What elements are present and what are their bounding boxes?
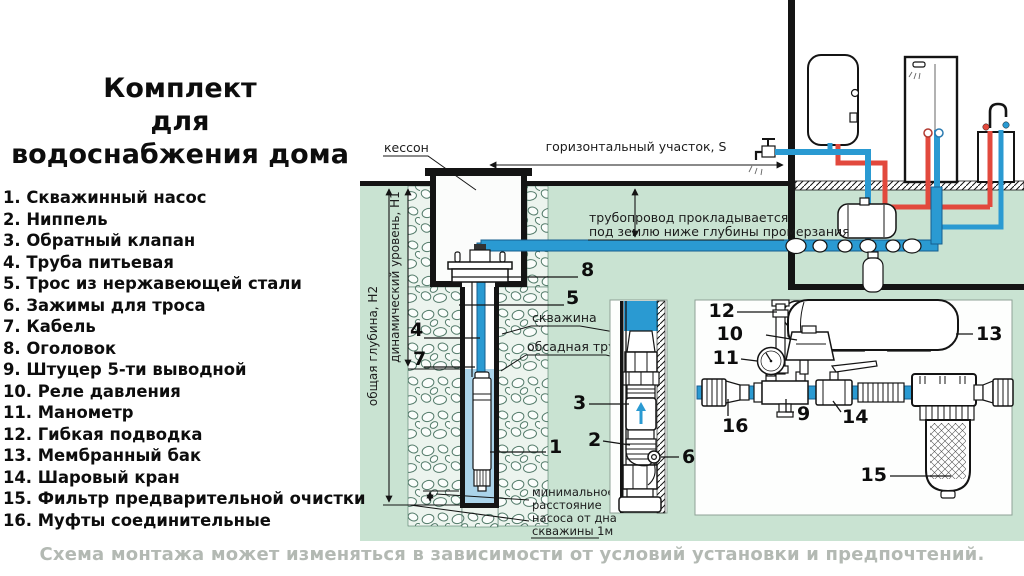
total-depth-label: общая глубина, Н2 <box>366 286 380 406</box>
min-distance-line1: минимальное <box>532 485 615 499</box>
pipeline-note-line2: под землю ниже глубины промерзания <box>589 224 850 239</box>
house-wall <box>788 0 795 191</box>
callout-15: 15 <box>861 464 887 486</box>
parts-list-panel: Комплект для водоснабжения дома 1. Скваж… <box>0 0 360 576</box>
parts-list-item: 11. Манометр <box>3 402 360 424</box>
callout-8: 8 <box>581 259 594 281</box>
parts-list-item: 14. Шаровый кран <box>3 467 360 489</box>
parts-list-item: 5. Трос из нержавеющей стали <box>3 273 360 295</box>
dynamic-level-label: динамический уровень, Н1 <box>388 191 402 363</box>
title-line-2: для <box>0 105 360 138</box>
caisson-label: кессон <box>384 140 429 155</box>
parts-list-item: 1. Скважинный насос <box>3 187 360 209</box>
title-line-1: Комплект <box>0 72 360 105</box>
pump-strainer <box>474 470 490 486</box>
horizontal-section-label: горизонтальный участок, S <box>546 139 727 154</box>
parts-list-item: 10. Реле давления <box>3 381 360 403</box>
parts-list-item: 12. Гибкая подводка <box>3 424 360 446</box>
parts-list-item: 16. Муфты соединительные <box>3 510 360 532</box>
callout-12: 12 <box>709 300 735 322</box>
casing-left <box>460 287 465 507</box>
parts-list-item: 4. Труба питьевая <box>3 252 360 274</box>
pipeline-note-line1: трубопровод прокладывается <box>589 210 788 225</box>
callout-6: 6 <box>682 446 695 468</box>
outdoor-tap <box>749 139 775 175</box>
footer-caption: Схема монтажа может изменяться в зависим… <box>0 544 1024 565</box>
page-title: Комплект для водоснабжения дома <box>0 72 360 171</box>
callout-7: 7 <box>413 348 426 370</box>
callout-3: 3 <box>573 392 586 414</box>
callout-4: 4 <box>410 319 423 341</box>
callout-10: 10 <box>717 323 743 345</box>
callout-2: 2 <box>588 429 601 451</box>
caisson-lid <box>425 168 532 176</box>
callout-1: 1 <box>549 436 562 458</box>
parts-list-item: 9. Штуцер 5-ти выводной <box>3 359 360 381</box>
casing-right <box>494 287 499 507</box>
basement-filter <box>863 258 883 292</box>
union-bellows <box>858 383 904 402</box>
callout-9: 9 <box>797 403 810 425</box>
callout-13: 13 <box>976 323 1002 345</box>
min-distance-line3: насоса от дна <box>532 511 617 525</box>
shower-head-icon <box>913 62 925 67</box>
basement-bottom <box>788 284 1024 290</box>
callout-14: 14 <box>842 406 868 428</box>
parts-list-item: 13. Мембранный бак <box>3 445 360 467</box>
parts-list-item: 8. Оголовок <box>3 338 360 360</box>
parts-list-item: 15. Фильтр предварительной очистки <box>3 488 360 510</box>
parts-list: 1. Скважинный насос 2. Ниппель 3. Обратн… <box>0 187 360 531</box>
parts-list-item: 7. Кабель <box>3 316 360 338</box>
boiler <box>808 55 859 145</box>
ground-surface <box>360 181 788 186</box>
title-line-3: водоснабжения дома <box>0 138 360 171</box>
pump-detail-panel <box>610 300 667 513</box>
parts-list-item: 6. Зажимы для троса <box>3 295 360 317</box>
min-distance-line2: расстояние <box>532 498 602 512</box>
shower-cabin <box>905 57 957 182</box>
callout-5: 5 <box>566 287 579 309</box>
callout-16: 16 <box>722 415 748 437</box>
borehole-label: скважина <box>532 310 597 325</box>
well-bottom <box>460 503 499 508</box>
min-distance-line4: скважины 1м <box>532 524 613 538</box>
parts-list-item: 2. Ниппель <box>3 209 360 231</box>
parts-list-item: 3. Обратный клапан <box>3 230 360 252</box>
callout-11: 11 <box>713 347 739 369</box>
